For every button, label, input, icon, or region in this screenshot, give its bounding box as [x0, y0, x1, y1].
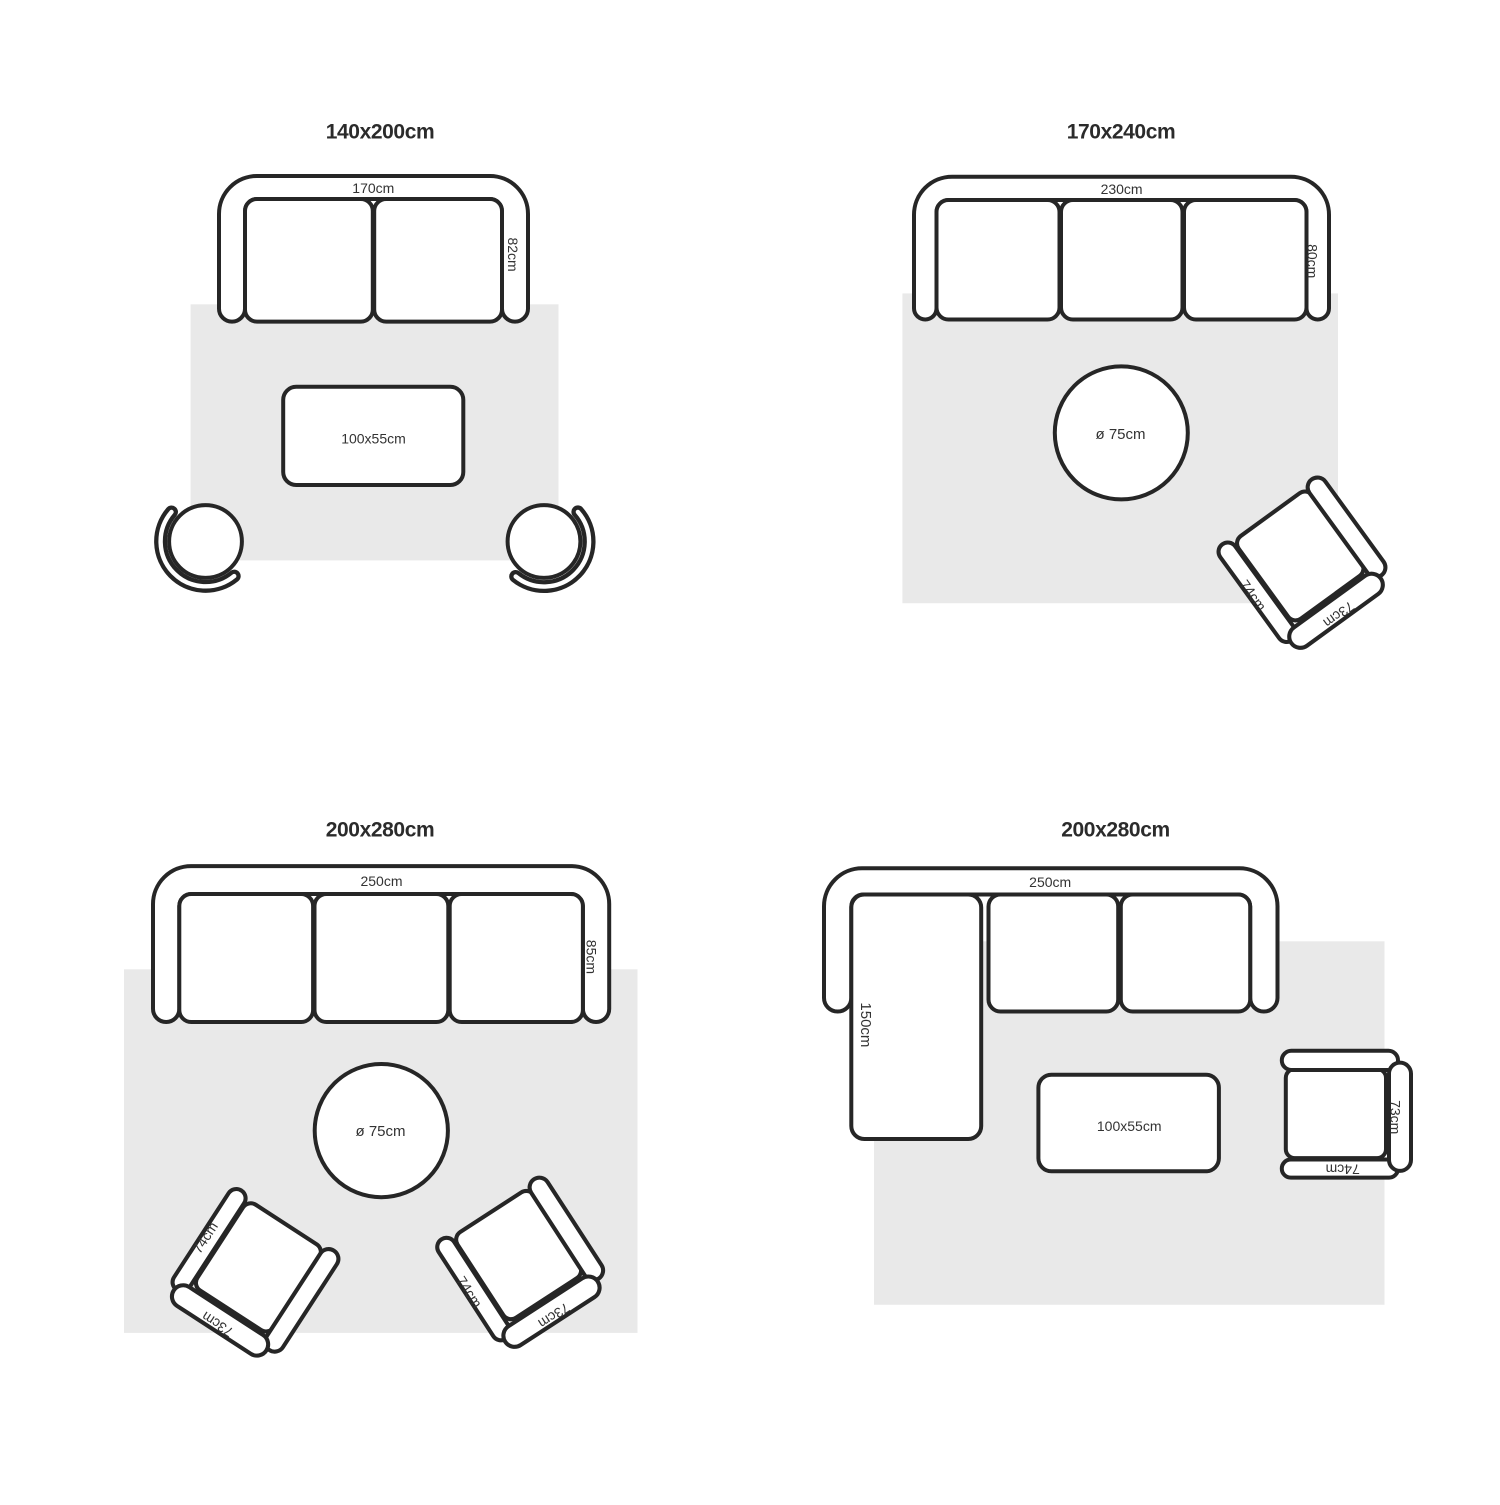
svg-text:200x280cm: 200x280cm	[326, 819, 435, 842]
svg-text:200x280cm: 200x280cm	[1061, 819, 1170, 842]
svg-text:82cm: 82cm	[505, 237, 521, 271]
svg-text:ø 75cm: ø 75cm	[1095, 426, 1145, 443]
svg-text:230cm: 230cm	[1101, 181, 1143, 197]
svg-text:73cm: 73cm	[1388, 1100, 1404, 1134]
svg-text:170x240cm: 170x240cm	[1067, 121, 1176, 144]
svg-text:ø 75cm: ø 75cm	[355, 1123, 405, 1140]
svg-text:100x55cm: 100x55cm	[341, 431, 406, 447]
svg-text:74cm: 74cm	[1326, 1161, 1360, 1177]
svg-text:250cm: 250cm	[1029, 874, 1071, 890]
svg-text:150cm: 150cm	[857, 1002, 874, 1047]
svg-text:85cm: 85cm	[584, 940, 600, 974]
svg-text:100x55cm: 100x55cm	[1097, 1118, 1162, 1134]
svg-text:140x200cm: 140x200cm	[326, 121, 435, 144]
svg-text:250cm: 250cm	[360, 873, 402, 889]
svg-text:80cm: 80cm	[1304, 244, 1320, 278]
svg-text:170cm: 170cm	[352, 180, 394, 196]
